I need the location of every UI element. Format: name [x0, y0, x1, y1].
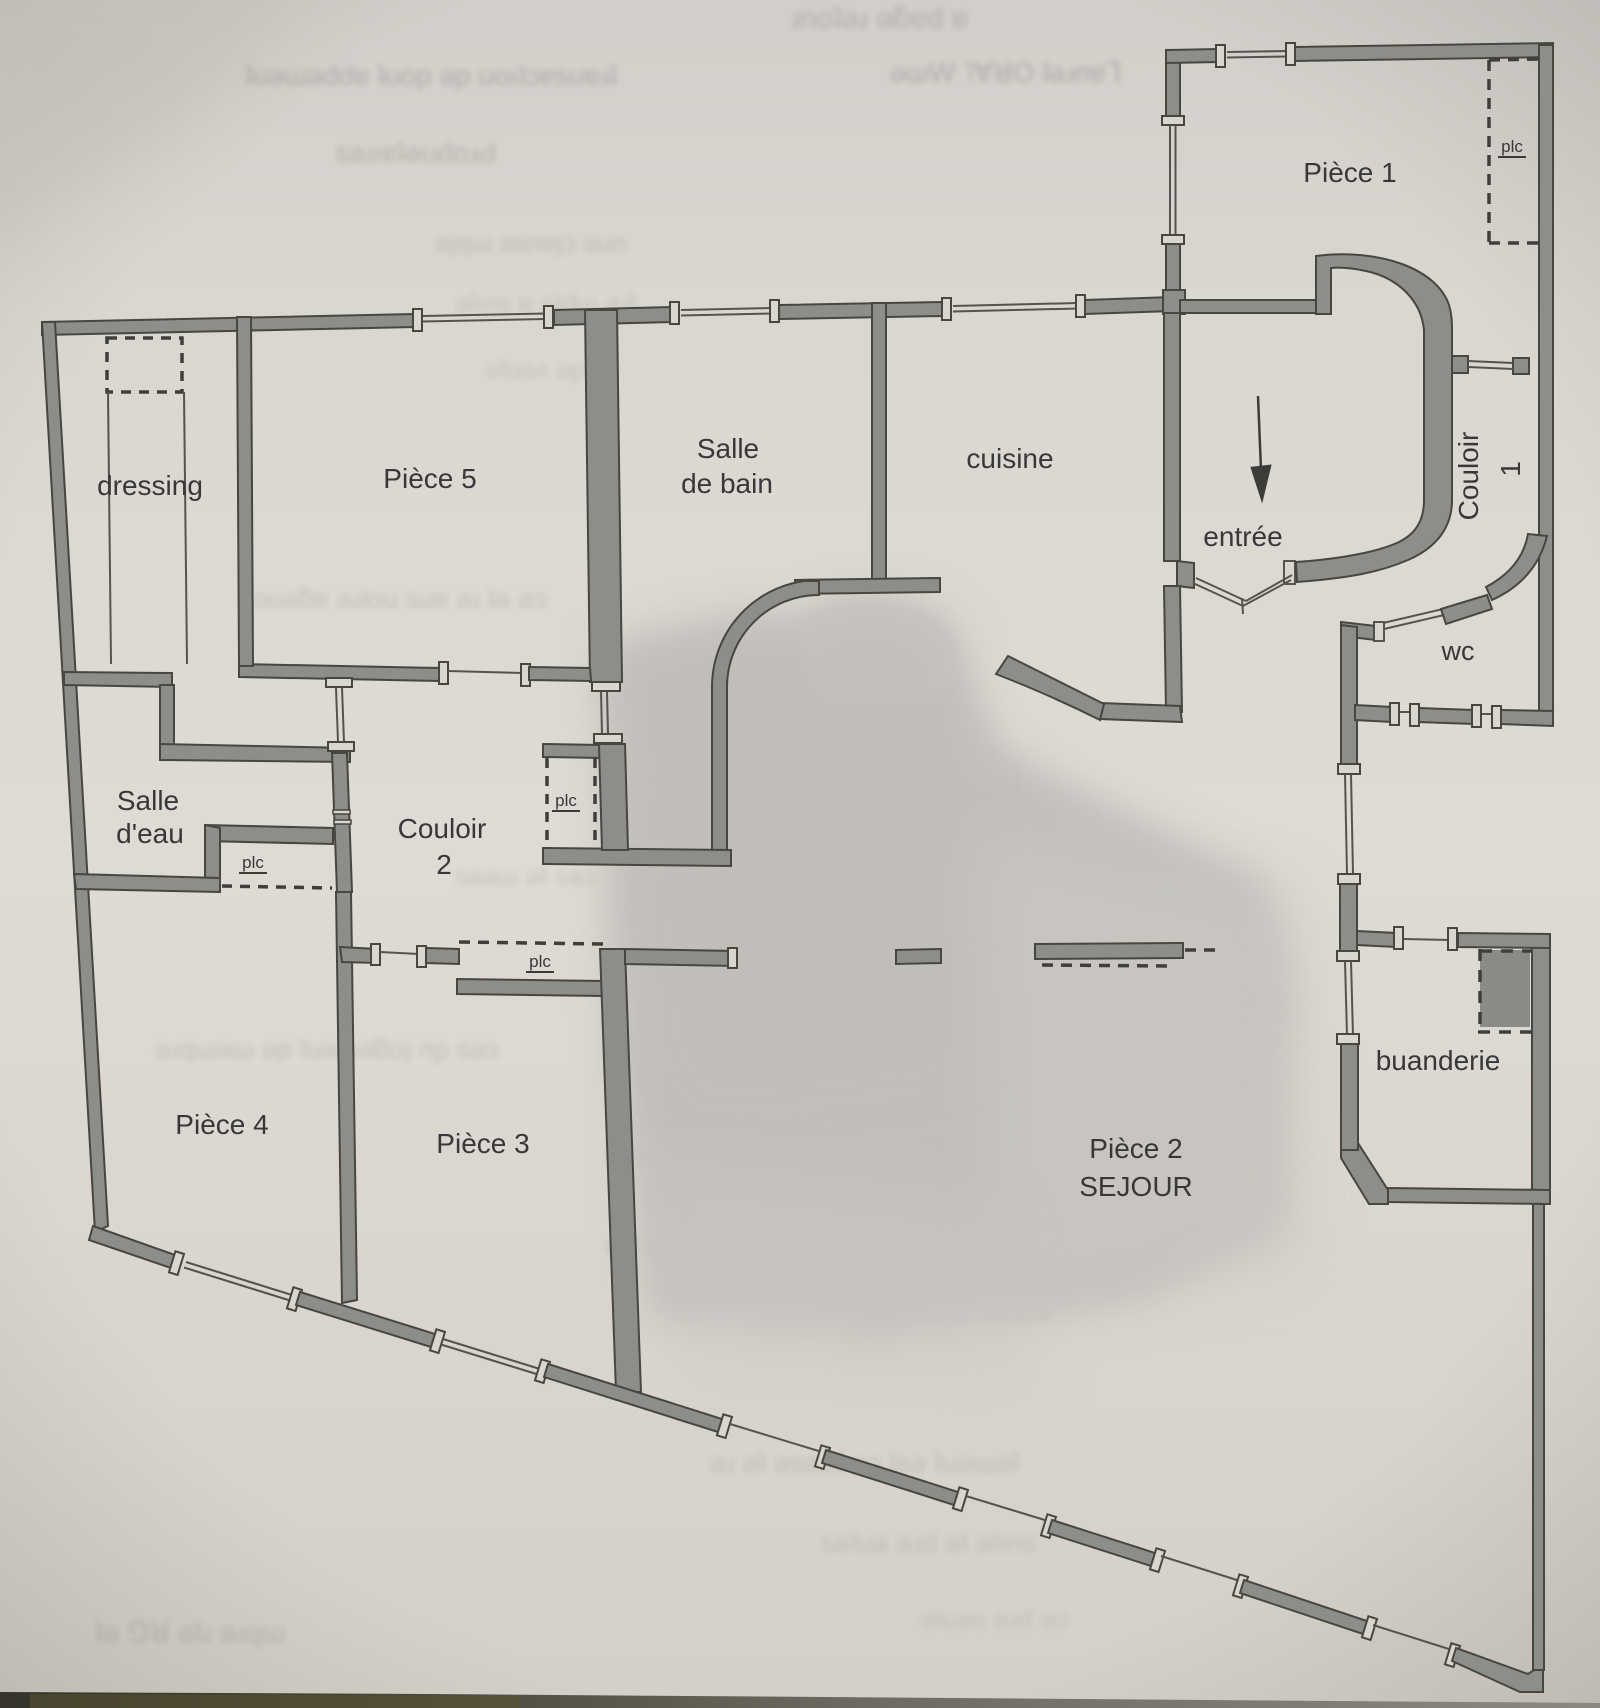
svg-text:Couloir: Couloir: [398, 813, 487, 844]
svg-text:Salle: Salle: [697, 433, 759, 464]
svg-text:ǝʇuǝs ǝɹd ǝɔ: ǝʇuǝs ǝɹd ǝɔ: [920, 1604, 1069, 1634]
svg-text:SEJOUR: SEJOUR: [1079, 1171, 1193, 1202]
svg-text:cuisine: cuisine: [966, 443, 1053, 474]
svg-text:ǝɹqɯǝɯ ǝp ʇuǝɯǝƃoן np sǝɔ: ǝɹqɯǝɯ ǝp ʇuǝɯǝƃoן np sǝɔ: [155, 1034, 498, 1064]
svg-text:Pièce 1: Pièce 1: [1303, 157, 1396, 188]
svg-text:de bain: de bain: [681, 468, 773, 499]
svg-text:Pièce 4: Pièce 4: [175, 1109, 268, 1140]
svg-text:Salle: Salle: [117, 785, 179, 816]
svg-text:plc: plc: [529, 952, 551, 971]
svg-text:entrée: entrée: [1203, 521, 1282, 552]
svg-text:Pièce 5: Pièce 5: [383, 463, 476, 494]
svg-text:ǝןqɯ ǝsnɐןɔ ǝun: ǝןqɯ ǝsnɐןɔ ǝun: [435, 228, 626, 258]
svg-text:2: 2: [436, 849, 452, 880]
svg-text:buanderie: buanderie: [1376, 1045, 1501, 1076]
svg-text:ɹnoʇǝɹ ǝƃɐd ɐ: ɹnoʇǝɹ ǝƃɐd ɐ: [790, 2, 968, 35]
svg-text:plc: plc: [242, 853, 264, 872]
svg-text:ʇuǝɯǝddɐ ʇuop ǝp uoıʇɔɐsuɐɹʇ: ʇuǝɯǝddɐ ʇuop ǝp uoıʇɔɐsuɐɹʇ: [245, 60, 617, 91]
svg-text:ǝɯW ˥∀ꓤO ʇǝɹnɐ⅂: ǝɯW ˥∀ꓤO ʇǝɹnɐ⅂: [890, 57, 1121, 88]
svg-text:Couloir: Couloir: [1453, 432, 1484, 521]
svg-text:Pièce 2: Pièce 2: [1089, 1133, 1182, 1164]
svg-text:Pièce 3: Pièce 3: [436, 1128, 529, 1159]
svg-text:ǝɔuǝƃɐ ǝɹʇou suɐ ǝɹ ʇǝ ǝɔ: ǝɔuǝƃɐ ǝɹʇou suɐ ǝɹ ʇǝ ǝɔ: [240, 584, 546, 614]
svg-text:sǝʇuǝ ǝɹd ǝʇ ǝʇıns: sǝʇuǝ ǝɹd ǝʇ ǝʇıns: [820, 1527, 1036, 1558]
svg-text:sǝɹıɐʇǝıɹdoɹԀ: sǝɹıɐʇǝıɹdoɹԀ: [335, 137, 497, 168]
svg-text:d'eau: d'eau: [116, 818, 184, 849]
svg-text:plc: plc: [555, 791, 577, 810]
svg-text:ʇǝ ⅁ꓤ ǝʇɹ ǝɹqɯ: ʇǝ ⅁ꓤ ǝʇɹ ǝɹqɯ: [95, 1617, 286, 1649]
svg-text:dressing: dressing: [97, 470, 203, 501]
svg-text:plc: plc: [1501, 137, 1523, 156]
svg-text:1: 1: [1495, 461, 1526, 477]
svg-text:wc: wc: [1441, 636, 1475, 666]
svg-text:sǝǝɯ ǝʇ sǝɔ: sǝǝɯ ǝʇ sǝɔ: [455, 861, 595, 891]
